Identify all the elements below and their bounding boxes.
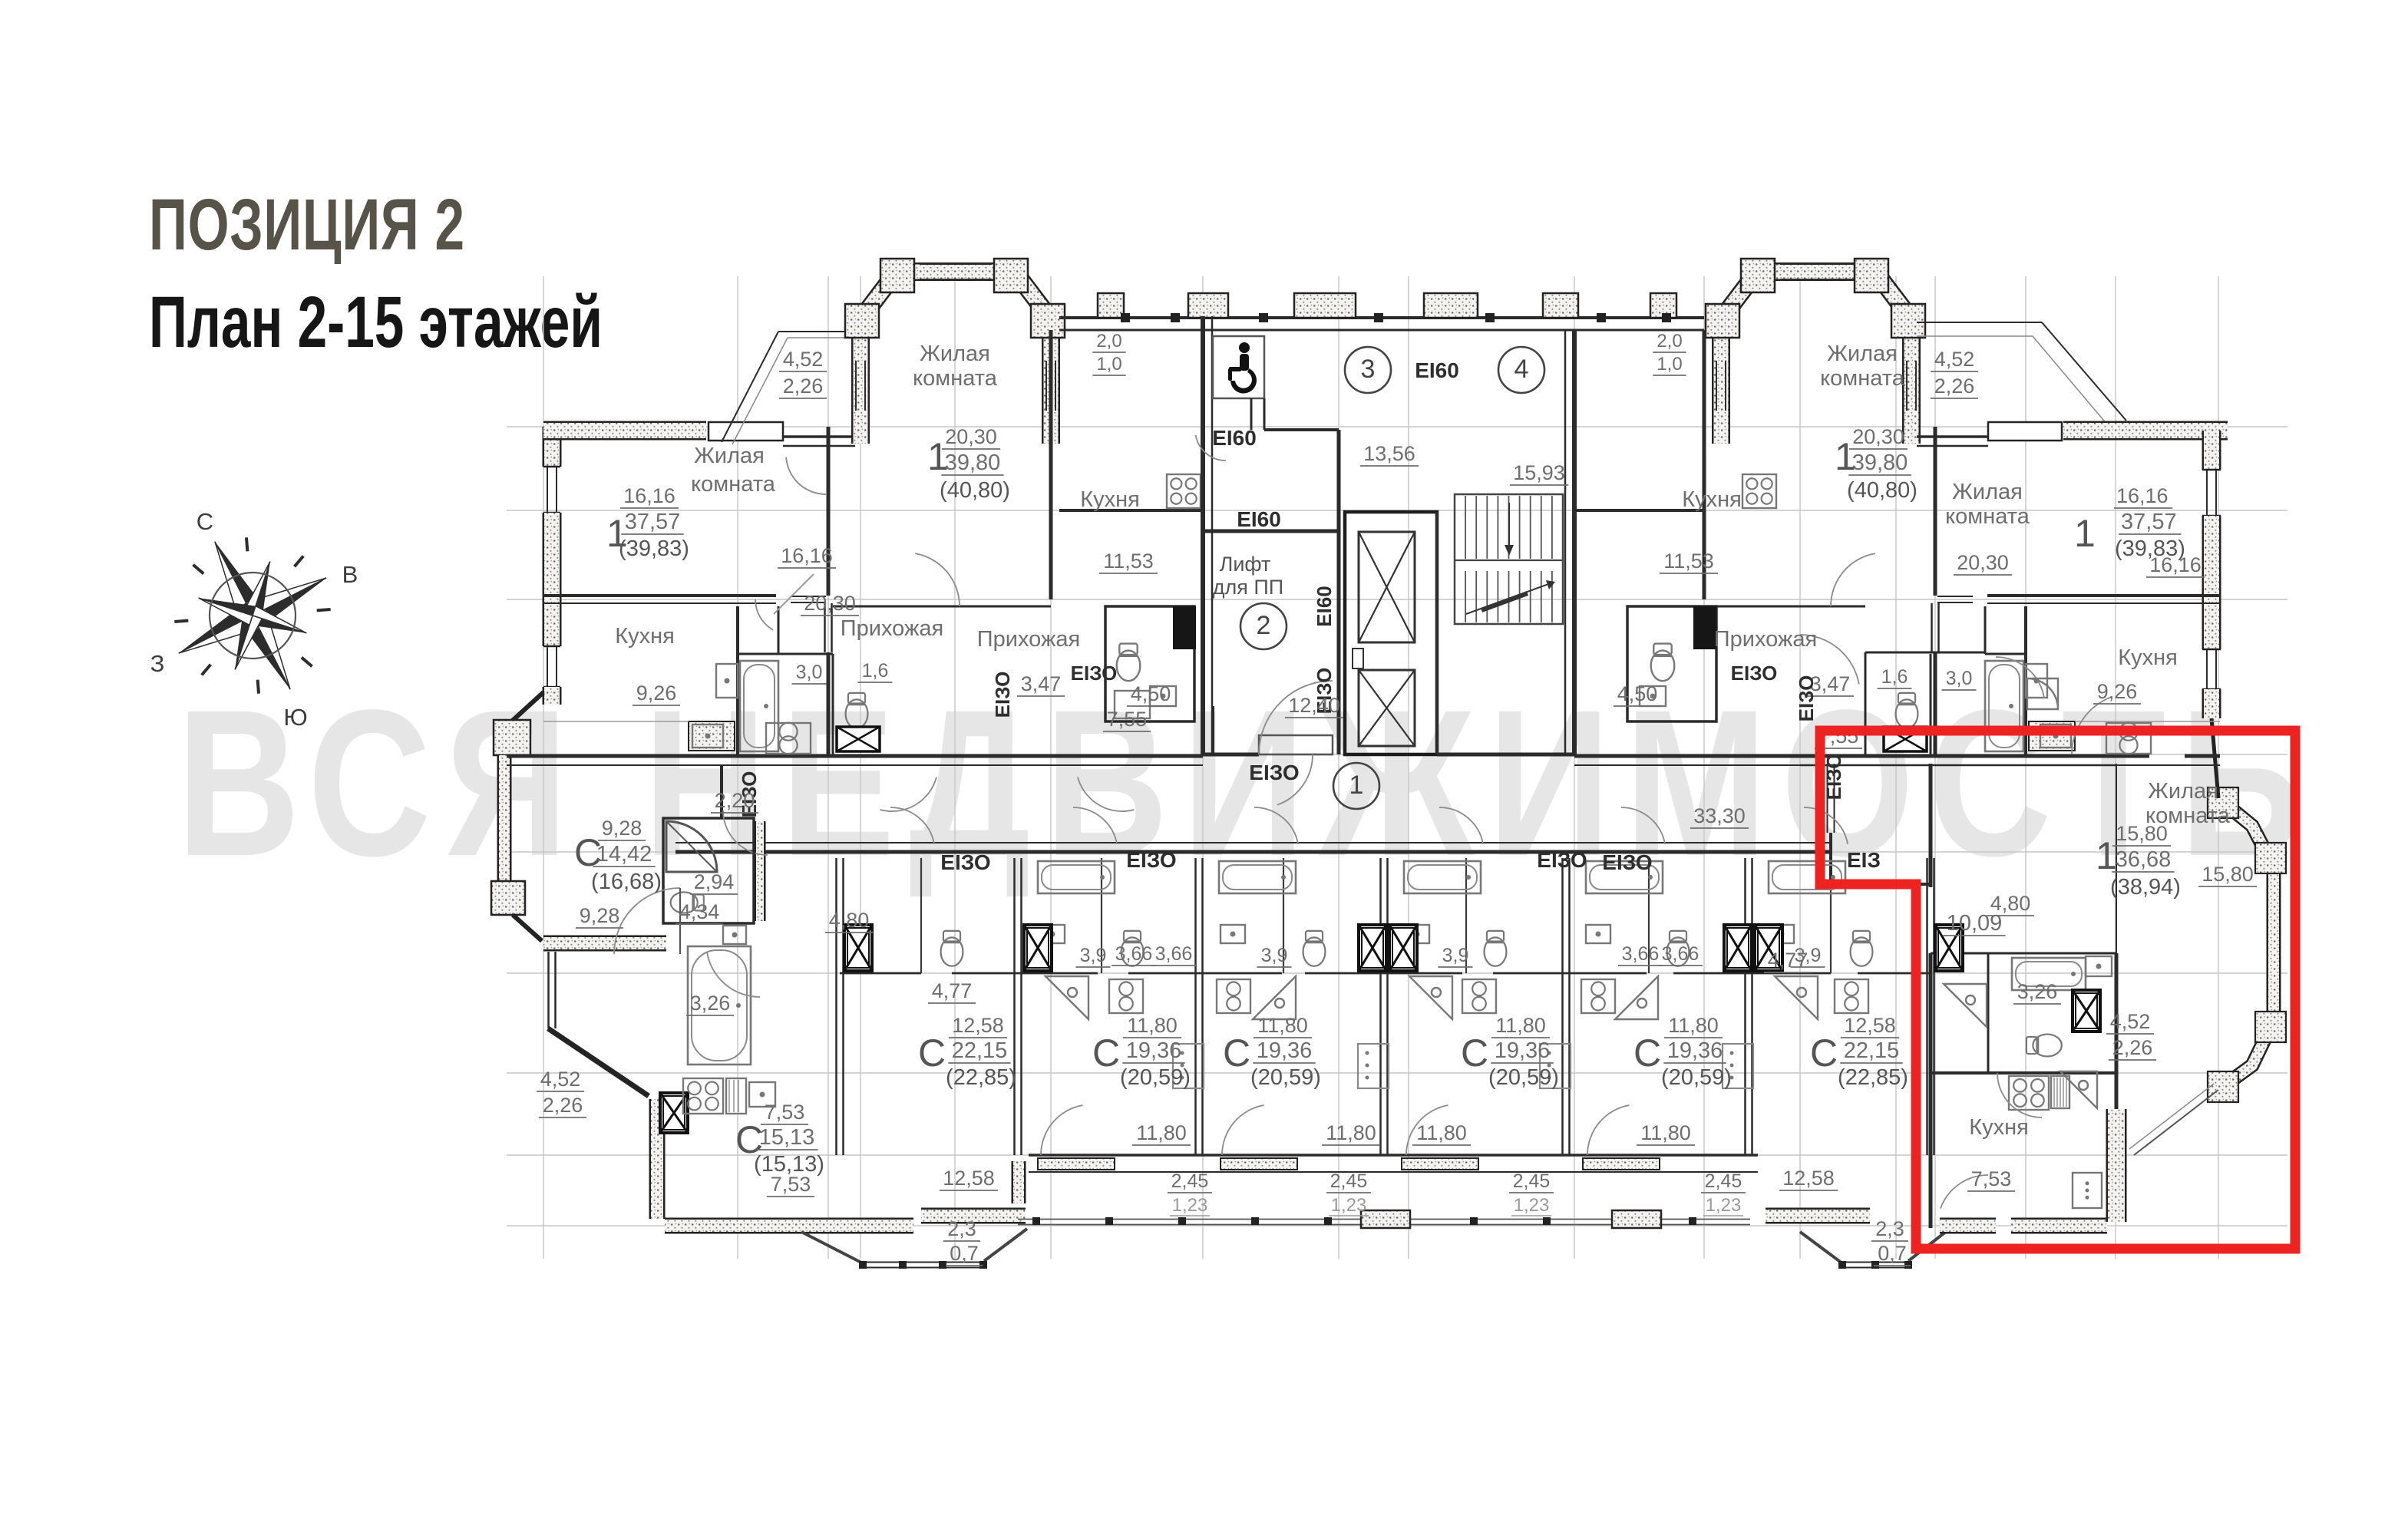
svg-text:С: С — [1810, 1032, 1838, 1074]
svg-text:4,80: 4,80 — [829, 909, 870, 932]
svg-text:З: З — [150, 650, 165, 677]
svg-text:3,0: 3,0 — [796, 662, 823, 683]
svg-text:4: 4 — [1514, 355, 1529, 384]
svg-text:ЕІ60: ЕІ60 — [1237, 507, 1281, 531]
svg-text:3,9: 3,9 — [1442, 945, 1469, 966]
svg-text:4,77: 4,77 — [1768, 949, 1808, 972]
svg-text:Кухня: Кухня — [615, 624, 675, 649]
svg-text:15,80: 15,80 — [2202, 863, 2254, 886]
svg-text:13,56: 13,56 — [1363, 442, 1415, 465]
svg-text:20,30: 20,30 — [804, 592, 856, 615]
svg-text:Жилая: Жилая — [920, 342, 990, 366]
svg-text:3,66: 3,66 — [1115, 943, 1153, 965]
svg-text:7,55: 7,55 — [1107, 708, 1148, 731]
svg-text:комната: комната — [1820, 366, 1905, 391]
svg-text:1,23: 1,23 — [1172, 1195, 1208, 1216]
svg-text:3,66: 3,66 — [1155, 943, 1193, 965]
svg-text:2,26: 2,26 — [783, 375, 824, 398]
svg-text:1,6: 1,6 — [1881, 666, 1908, 688]
svg-text:1,0: 1,0 — [1096, 354, 1121, 375]
svg-text:9,28: 9,28 — [602, 817, 642, 840]
svg-text:ЕІЗО: ЕІЗО — [1126, 848, 1176, 872]
svg-text:37,57: 37,57 — [625, 510, 681, 534]
svg-text:4,52: 4,52 — [540, 1068, 581, 1091]
svg-text:(22,85): (22,85) — [1838, 1065, 1908, 1090]
svg-text:4,52: 4,52 — [2110, 1010, 2151, 1033]
svg-text:2,45: 2,45 — [1171, 1170, 1209, 1192]
svg-text:С: С — [197, 508, 213, 535]
svg-text:Жилая: Жилая — [1952, 480, 2023, 504]
svg-text:2,94: 2,94 — [694, 870, 735, 893]
svg-text:комната: комната — [691, 472, 776, 497]
svg-text:11,80: 11,80 — [1416, 1121, 1467, 1144]
svg-text:ЕІЗО: ЕІЗО — [1822, 754, 1845, 801]
svg-text:Лифт: Лифт — [1220, 553, 1271, 576]
svg-text:С: С — [1223, 1032, 1250, 1074]
svg-text:10,09: 10,09 — [1947, 911, 2003, 936]
svg-text:(22,85): (22,85) — [946, 1065, 1016, 1090]
svg-text:2,45: 2,45 — [1513, 1170, 1551, 1192]
svg-text:1,23: 1,23 — [1706, 1195, 1742, 1216]
svg-text:14,42: 14,42 — [596, 842, 652, 867]
svg-text:7,53: 7,53 — [765, 1101, 805, 1124]
svg-text:7,53: 7,53 — [771, 1173, 811, 1196]
svg-text:С: С — [1633, 1032, 1661, 1074]
svg-text:3,47: 3,47 — [1021, 672, 1062, 695]
svg-text:ЕІ60: ЕІ60 — [1212, 426, 1257, 450]
svg-text:11,53: 11,53 — [1103, 550, 1154, 573]
svg-text:19,36: 19,36 — [1667, 1038, 1723, 1063]
svg-text:3,66: 3,66 — [1622, 943, 1660, 965]
svg-text:(40,80): (40,80) — [940, 478, 1010, 503]
svg-text:11,80: 11,80 — [1127, 1014, 1178, 1037]
svg-text:ПОЗИЦИЯ 2: ПОЗИЦИЯ 2 — [149, 183, 465, 265]
svg-text:1,0: 1,0 — [1657, 354, 1682, 375]
svg-text:ЕІЗО: ЕІЗО — [1795, 675, 1818, 722]
svg-text:33,30: 33,30 — [1693, 804, 1746, 827]
svg-text:1: 1 — [1349, 771, 1364, 800]
svg-text:15,80: 15,80 — [2116, 822, 2168, 845]
svg-text:4,50: 4,50 — [1617, 682, 1658, 705]
svg-text:(40,80): (40,80) — [1847, 478, 1917, 503]
svg-text:2,0: 2,0 — [1657, 331, 1682, 352]
svg-text:2,0: 2,0 — [1096, 331, 1121, 352]
svg-text:3,9: 3,9 — [1261, 945, 1288, 966]
svg-text:19,36: 19,36 — [1257, 1038, 1313, 1063]
svg-text:3,26: 3,26 — [690, 992, 731, 1015]
svg-text:Прихожая: Прихожая — [1714, 627, 1817, 652]
svg-text:1,6: 1,6 — [862, 660, 889, 682]
svg-text:Жилая: Жилая — [1827, 342, 1898, 366]
svg-text:ЕІЗО: ЕІЗО — [1602, 850, 1652, 874]
svg-text:12,58: 12,58 — [943, 1167, 995, 1190]
svg-text:Прихожая: Прихожая — [977, 627, 1080, 652]
svg-text:4,52: 4,52 — [1934, 348, 1975, 371]
svg-text:20,30: 20,30 — [1957, 551, 2009, 574]
svg-text:2,45: 2,45 — [1330, 1170, 1368, 1192]
svg-text:0,7: 0,7 — [1878, 1242, 1907, 1265]
svg-text:16,16: 16,16 — [2149, 553, 2202, 576]
svg-text:комната: комната — [913, 366, 998, 391]
svg-text:12,58: 12,58 — [1844, 1014, 1896, 1037]
svg-text:(20,59): (20,59) — [1661, 1065, 1732, 1090]
svg-text:1,23: 1,23 — [1331, 1195, 1367, 1216]
svg-text:(20,59): (20,59) — [1488, 1065, 1559, 1090]
svg-text:С: С — [1092, 1032, 1120, 1074]
svg-text:7,53: 7,53 — [1971, 1167, 2012, 1190]
svg-text:9,28: 9,28 — [580, 904, 620, 927]
svg-text:комната: комната — [1945, 504, 2030, 529]
svg-text:ЕІЗО: ЕІЗО — [940, 850, 990, 874]
svg-text:11,80: 11,80 — [1136, 1121, 1187, 1144]
svg-text:Кухня: Кухня — [1682, 487, 1742, 512]
svg-text:В: В — [342, 561, 358, 588]
svg-text:(20,59): (20,59) — [1120, 1065, 1191, 1090]
svg-text:22,15: 22,15 — [952, 1038, 1008, 1063]
svg-text:1,23: 1,23 — [1514, 1195, 1550, 1216]
svg-text:(39,83): (39,83) — [619, 536, 689, 561]
svg-text:9,26: 9,26 — [636, 682, 677, 705]
svg-text:(20,59): (20,59) — [1250, 1065, 1321, 1090]
svg-text:2,26: 2,26 — [2112, 1036, 2153, 1059]
svg-text:Жилая: Жилая — [2148, 779, 2218, 804]
svg-text:1: 1 — [2074, 512, 2096, 555]
svg-text:ЕІЗО: ЕІЗО — [991, 672, 1014, 718]
svg-text:Жилая: Жилая — [694, 444, 765, 468]
svg-text:2,3: 2,3 — [1875, 1217, 1904, 1240]
svg-text:4,34: 4,34 — [679, 900, 720, 923]
svg-text:11,80: 11,80 — [1495, 1014, 1546, 1037]
svg-text:1: 1 — [2096, 834, 2117, 877]
svg-text:39,80: 39,80 — [945, 451, 1001, 475]
svg-text:9,26: 9,26 — [2097, 680, 2138, 703]
svg-text:ЕІЗО: ЕІЗО — [1731, 662, 1778, 685]
svg-text:ЕІЗО: ЕІЗО — [1071, 662, 1118, 685]
svg-text:План 2-15 этажей: План 2-15 этажей — [149, 281, 603, 362]
svg-text:19,36: 19,36 — [1126, 1038, 1182, 1063]
svg-text:16,16: 16,16 — [781, 544, 833, 567]
svg-text:2,3: 2,3 — [947, 1217, 976, 1240]
svg-text:Кухня: Кухня — [1080, 487, 1140, 512]
svg-text:3,9: 3,9 — [1080, 945, 1107, 966]
svg-text:Кухня: Кухня — [2118, 645, 2178, 670]
svg-text:3,66: 3,66 — [1662, 943, 1699, 965]
svg-text:11,80: 11,80 — [1257, 1014, 1308, 1037]
svg-text:11,80: 11,80 — [1668, 1014, 1719, 1037]
svg-text:4,77: 4,77 — [932, 979, 973, 1002]
svg-text:ЕІ60: ЕІ60 — [1415, 358, 1459, 382]
svg-text:36,68: 36,68 — [2116, 847, 2172, 872]
svg-text:4,52: 4,52 — [783, 348, 824, 371]
svg-text:С: С — [1461, 1032, 1488, 1074]
svg-text:37,57: 37,57 — [2121, 510, 2177, 534]
svg-text:12,40: 12,40 — [1288, 694, 1340, 717]
svg-text:0,7: 0,7 — [950, 1242, 979, 1265]
svg-text:22,15: 22,15 — [1844, 1038, 1900, 1063]
svg-text:Кухня: Кухня — [1969, 1115, 2029, 1140]
svg-text:С: С — [918, 1032, 946, 1074]
svg-text:3: 3 — [1361, 355, 1376, 384]
svg-text:2,45: 2,45 — [1705, 1170, 1742, 1192]
svg-text:12,58: 12,58 — [952, 1014, 1004, 1037]
svg-text:ЕІЗО: ЕІЗО — [1249, 761, 1299, 784]
svg-text:4,50: 4,50 — [1131, 682, 1171, 705]
svg-text:12,58: 12,58 — [1782, 1167, 1835, 1190]
svg-text:39,80: 39,80 — [1852, 451, 1908, 475]
svg-text:11,53: 11,53 — [1663, 550, 1714, 573]
svg-text:3,0: 3,0 — [1946, 668, 1973, 689]
svg-text:20,30: 20,30 — [1852, 425, 1904, 448]
svg-text:Ю: Ю — [283, 704, 307, 731]
svg-text:16,16: 16,16 — [623, 484, 675, 507]
svg-text:11,80: 11,80 — [1640, 1121, 1691, 1144]
svg-text:15,13: 15,13 — [759, 1125, 815, 1150]
svg-text:19,36: 19,36 — [1495, 1038, 1551, 1063]
svg-text:ЕІЗ: ЕІЗ — [1847, 848, 1881, 872]
svg-text:2: 2 — [1257, 611, 1271, 640]
svg-text:11,80: 11,80 — [1326, 1121, 1376, 1144]
svg-text:2,26: 2,26 — [1934, 375, 1975, 398]
svg-text:(38,94): (38,94) — [2110, 875, 2181, 900]
svg-text:(16,68): (16,68) — [591, 870, 662, 894]
svg-text:16,16: 16,16 — [2116, 484, 2169, 507]
svg-text:Прихожая: Прихожая — [841, 616, 943, 641]
svg-text:2,20: 2,20 — [715, 789, 755, 812]
svg-text:2,26: 2,26 — [543, 1094, 583, 1117]
svg-text:ЕІ60: ЕІ60 — [1313, 586, 1336, 627]
svg-text:15,93: 15,93 — [1513, 461, 1565, 484]
svg-text:ЕІЗО: ЕІЗО — [1537, 848, 1587, 872]
svg-text:для ПП: для ПП — [1213, 576, 1283, 599]
svg-text:20,30: 20,30 — [945, 425, 997, 448]
svg-text:3,26: 3,26 — [2017, 980, 2058, 1003]
